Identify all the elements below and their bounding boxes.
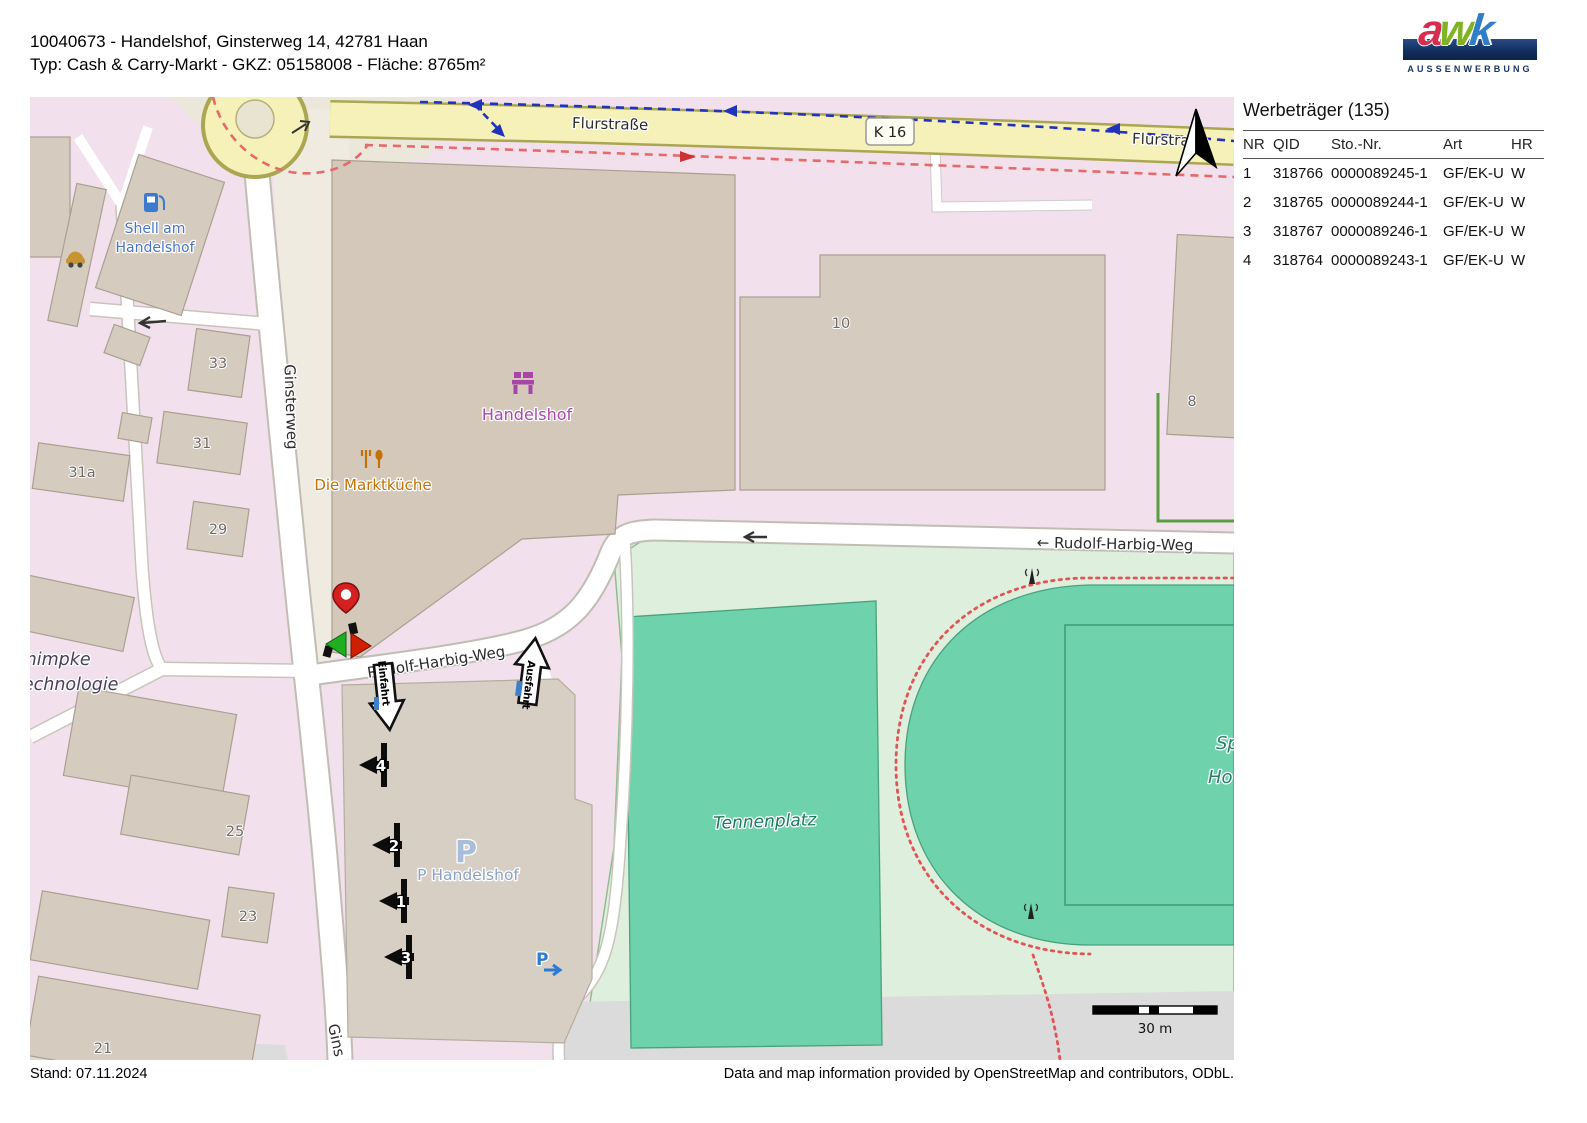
wt-marker-label: 1 (396, 893, 406, 911)
page: 10040673 - Handelshof, Ginsterweg 14, 42… (0, 0, 1587, 1123)
cell-nr: 4 (1243, 252, 1273, 269)
poi-handelshof: Handelshof (482, 405, 573, 424)
table-row[interactable]: 1 318766 0000089245-1 GF/EK-U W (1243, 159, 1544, 188)
col-hr: HR (1511, 136, 1544, 153)
cell-hr: W (1511, 252, 1544, 269)
logo-subtext: AUSSENWERBUNG (1403, 64, 1537, 74)
housenumber-29: 29 (209, 522, 227, 538)
werbetraeger-table: NR QID Sto.-Nr. Art HR 1 318766 00000892… (1243, 130, 1544, 275)
cell-hr: W (1511, 223, 1544, 240)
footer-attribution: Data and map information provided by Ope… (724, 1066, 1234, 1082)
cell-qid: 318767 (1273, 223, 1331, 240)
cell-stonr: 0000089243-1 (1331, 252, 1443, 269)
parking-label: P Handelshof (417, 866, 519, 884)
housenumber-21: 21 (94, 1041, 112, 1057)
poi-chimpke-line2: technologie (30, 675, 118, 695)
street-ginsterweg: Ginsterweg (281, 364, 302, 450)
cell-art: GF/EK-U (1443, 223, 1511, 240)
awk-logo: awk AUSSENWERBUNG (1403, 12, 1537, 80)
cell-qid: 318765 (1273, 194, 1331, 211)
small-p-label: P (536, 950, 548, 970)
map-svg: P Flurstraße Flurstraße K 16 Ginsterweg … (30, 97, 1234, 1060)
poi-shell-line1: Shell am (125, 221, 186, 237)
cell-art: GF/EK-U (1443, 165, 1511, 182)
wt-marker-label: 2 (389, 837, 399, 855)
footer: Stand: 07.11.2024 Data and map informati… (30, 1066, 1234, 1082)
einfahrt-sign (374, 697, 379, 710)
col-art: Art (1443, 136, 1511, 153)
table-row[interactable]: 2 318765 0000089244-1 GF/EK-U W (1243, 188, 1544, 217)
cell-nr: 3 (1243, 223, 1273, 240)
cell-art: GF/EK-U (1443, 252, 1511, 269)
cell-hr: W (1511, 165, 1544, 182)
housenumber-23: 23 (239, 909, 257, 925)
poi-sportplatz-cut1: Sp (1216, 733, 1234, 754)
cell-qid: 318764 (1273, 252, 1331, 269)
stadium-field (905, 585, 1234, 945)
table-row[interactable]: 4 318764 0000089243-1 GF/EK-U W (1243, 246, 1544, 275)
col-nr: NR (1243, 136, 1273, 153)
table-row[interactable]: 3 318767 0000089246-1 GF/EK-U W (1243, 217, 1544, 246)
cell-nr: 2 (1243, 194, 1273, 211)
wt-marker-label: 4 (376, 757, 386, 775)
cell-stonr: 0000089246-1 (1331, 223, 1443, 240)
panel-title: Werbeträger (135) (1243, 100, 1551, 121)
col-stonr: Sto.-Nr. (1331, 136, 1443, 153)
housenumber-8: 8 (1187, 394, 1196, 410)
housenumber-31: 31 (193, 436, 211, 452)
cell-qid: 318766 (1273, 165, 1331, 182)
col-qid: QID (1273, 136, 1331, 153)
poi-sportplatz-cut2: Ho (1208, 767, 1233, 788)
street-rudolf-harbig-weg: ← Rudolf-Harbig-Weg (1037, 534, 1194, 555)
cell-hr: W (1511, 194, 1544, 211)
header-line2: Typ: Cash & Carry-Markt - GKZ: 05158008 … (30, 53, 485, 76)
cell-nr: 1 (1243, 165, 1273, 182)
logo-word: awk (1416, 6, 1492, 56)
housenumber-10: 10 (832, 316, 850, 332)
table-header: NR QID Sto.-Nr. Art HR (1243, 130, 1544, 159)
werbetraeger-panel: Werbeträger (135) NR QID Sto.-Nr. Art HR… (1243, 100, 1551, 275)
footer-stand: Stand: 07.11.2024 (30, 1066, 147, 1082)
cell-art: GF/EK-U (1443, 194, 1511, 211)
housenumber-31a: 31a (68, 465, 95, 481)
wt-marker-label: 3 (401, 949, 411, 967)
map-canvas[interactable]: P Flurstraße Flurstraße K 16 Ginsterweg … (30, 97, 1234, 1060)
header: 10040673 - Handelshof, Ginsterweg 14, 42… (30, 30, 485, 76)
header-line1: 10040673 - Handelshof, Ginsterweg 14, 42… (30, 30, 485, 53)
poi-tennenplatz: Tennenplatz (713, 810, 818, 834)
housenumber-25: 25 (226, 824, 244, 840)
k16-badge: K 16 (866, 118, 914, 145)
cell-stonr: 0000089245-1 (1331, 165, 1443, 182)
housenumber-33: 33 (209, 356, 227, 372)
building-8 (1167, 235, 1234, 440)
scale-label: 30 m (1138, 1021, 1173, 1037)
parking-big-p: P (455, 835, 477, 870)
k16-label: K 16 (874, 125, 907, 141)
poi-shell-line2: Handelshof (115, 240, 195, 256)
poi-marktkueche: Die Marktküche (314, 476, 431, 494)
street-flurstrasse: Flurstraße (572, 114, 649, 134)
cell-stonr: 0000089244-1 (1331, 194, 1443, 211)
poi-chimpke-line1: chimpke (30, 650, 91, 670)
